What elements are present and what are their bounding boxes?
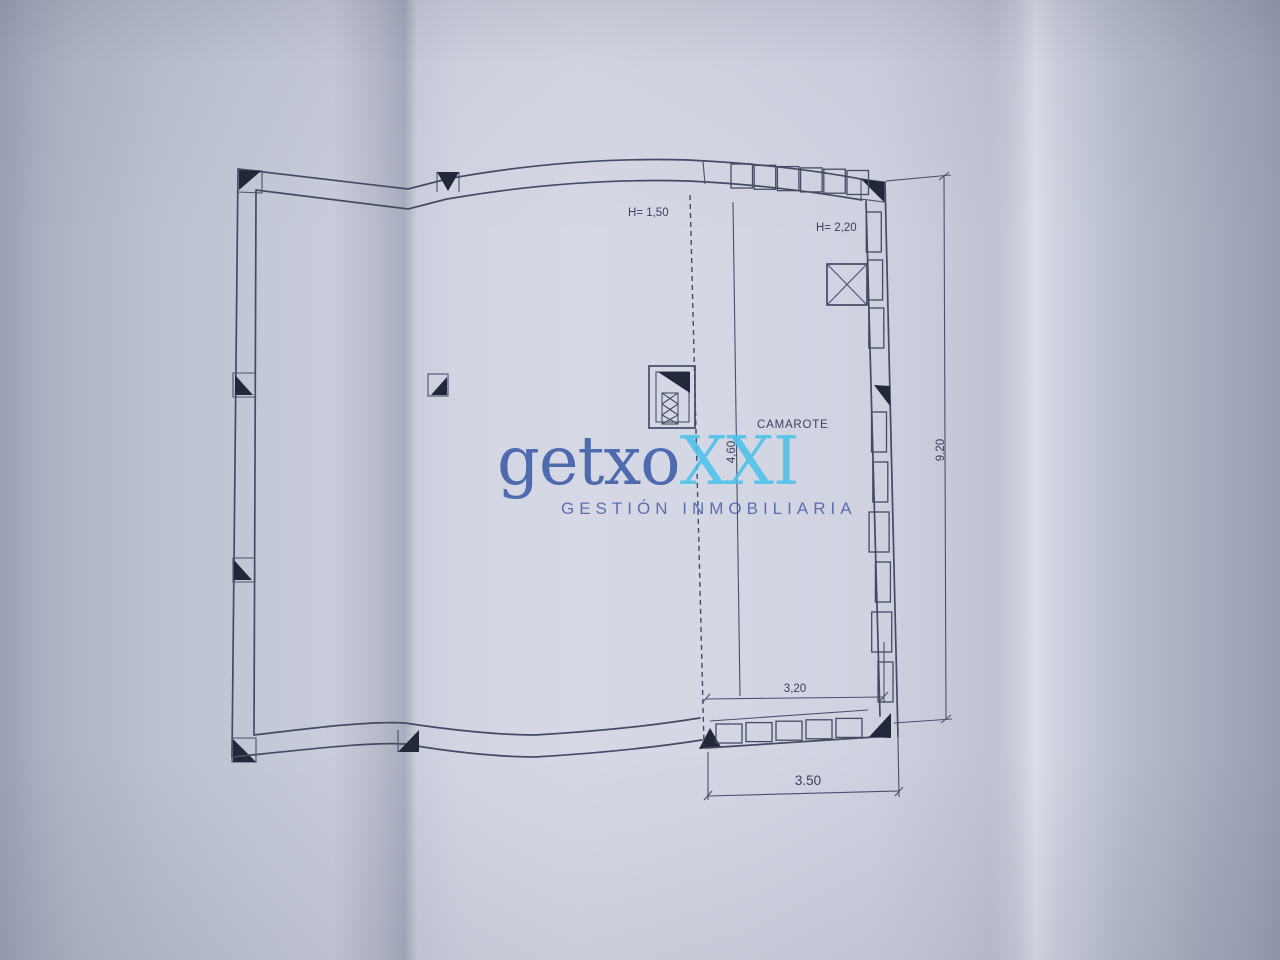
- dimension-line-3-50: 3.50: [704, 738, 903, 800]
- room-label: CAMAROTE: [757, 419, 829, 431]
- dimension-line-4-60: 4,60: [726, 202, 740, 696]
- photographed-floor-plan-page: 9,20 4,60 3,20 3.50 H= 1,50 H= 2,20 CAMA…: [0, 0, 1280, 960]
- right-window-strip: [866, 212, 893, 702]
- column-marker-right-middle: [874, 385, 890, 406]
- column-marker-top: [437, 172, 459, 192]
- corner-marker-top-right: [861, 179, 884, 202]
- partition-dashed-line: [690, 195, 704, 745]
- column-marker-left-upper: [233, 373, 255, 397]
- bottom-wall: [232, 718, 702, 757]
- dim-label-4-60: 4,60: [726, 441, 738, 463]
- corner-marker-bottom-left: [232, 738, 256, 762]
- dim-label-3-50: 3.50: [795, 773, 821, 788]
- dim-label-9-20: 9,20: [935, 439, 947, 461]
- dimension-line-3-20: 3,20: [702, 642, 888, 703]
- corner-marker-top-left: [238, 169, 262, 193]
- bottom-window-row: [706, 710, 890, 748]
- skylight-symbol: [827, 264, 867, 305]
- column-marker-left-lower: [233, 558, 255, 582]
- height-label-left: H= 1,50: [628, 207, 669, 219]
- dim-label-3-20: 3,20: [784, 683, 806, 695]
- column-marker-bottom: [398, 730, 419, 752]
- height-label-right: H= 2,20: [816, 222, 857, 234]
- left-wall: [232, 169, 256, 757]
- floor-plan-drawing: 9,20 4,60 3,20 3.50 H= 1,50 H= 2,20 CAMA…: [0, 0, 1280, 960]
- top-wall: [238, 160, 866, 209]
- partition-junction-marker: [699, 728, 721, 749]
- staircase-symbol: [649, 366, 695, 428]
- column-marker-center-left: [428, 374, 448, 396]
